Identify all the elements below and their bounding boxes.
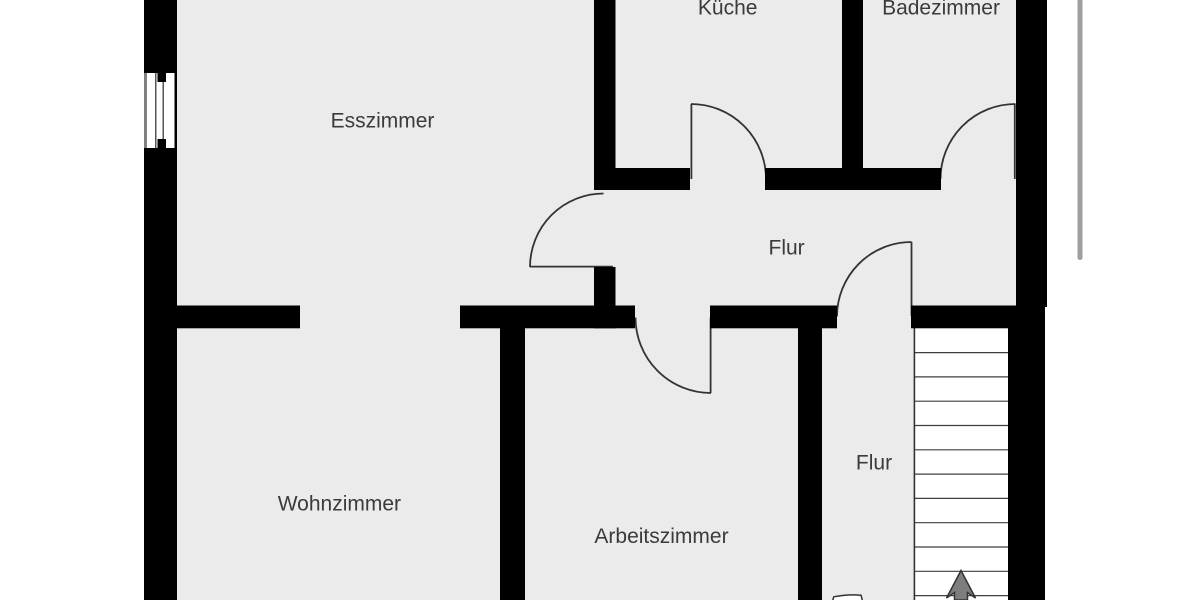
svg-text:Arbeitszimmer: Arbeitszimmer [594, 525, 728, 548]
svg-text:Flur: Flur [769, 236, 805, 259]
svg-text:Esszimmer: Esszimmer [331, 110, 435, 133]
svg-text:Badezimmer: Badezimmer [882, 0, 1000, 20]
svg-text:Küche: Küche [698, 0, 758, 20]
svg-text:Wohnzimmer: Wohnzimmer [278, 493, 401, 516]
svg-text:Flur: Flur [856, 451, 892, 474]
